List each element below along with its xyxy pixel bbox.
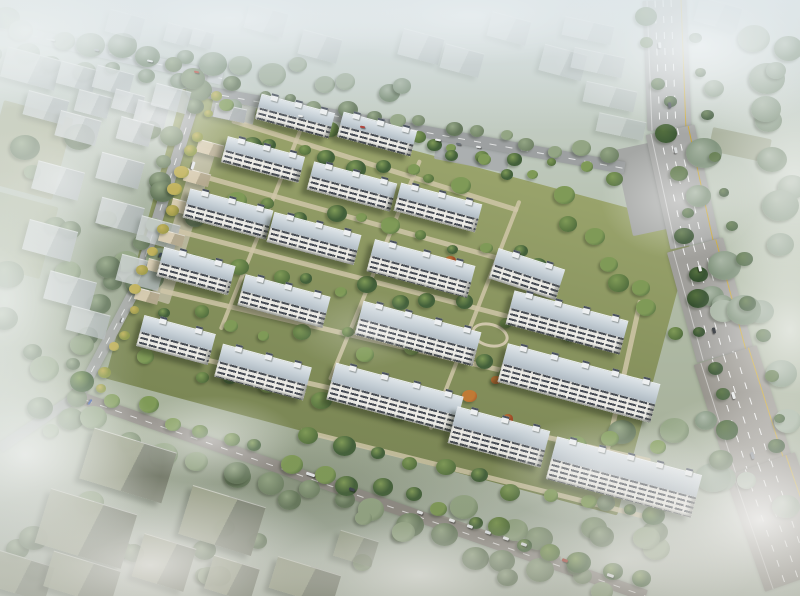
tree — [739, 296, 756, 311]
tree — [500, 484, 520, 501]
tree — [342, 327, 354, 337]
tree — [357, 276, 377, 293]
tree — [204, 110, 213, 118]
tree — [229, 56, 252, 76]
tree — [446, 122, 463, 136]
tree — [199, 52, 227, 76]
tree — [547, 158, 556, 166]
tree — [0, 47, 2, 60]
tree — [471, 468, 488, 482]
tree — [548, 146, 562, 158]
tree — [139, 396, 159, 413]
tree — [165, 418, 181, 432]
tree — [719, 188, 730, 197]
road — [725, 452, 800, 592]
lane-marking — [671, 0, 677, 130]
tree — [488, 517, 510, 536]
tree — [431, 523, 458, 546]
tree — [774, 36, 800, 60]
tree — [138, 69, 155, 83]
context-building — [582, 81, 637, 112]
tree — [768, 439, 784, 453]
tree — [281, 455, 303, 474]
tree — [192, 132, 203, 141]
tree — [451, 177, 471, 194]
tree — [704, 80, 724, 97]
tree — [651, 78, 665, 90]
tree — [223, 76, 241, 92]
lane-marking — [663, 0, 669, 130]
tree — [137, 349, 155, 364]
tree — [96, 384, 106, 393]
car — [659, 42, 662, 48]
tree — [336, 73, 356, 90]
tree — [436, 459, 455, 475]
context-building — [204, 555, 260, 596]
tree — [130, 306, 140, 314]
context-building — [486, 11, 531, 46]
tree — [478, 154, 491, 165]
tree — [590, 526, 614, 547]
tree — [682, 208, 694, 218]
context-building — [189, 27, 215, 49]
tree — [544, 489, 559, 502]
tree — [767, 233, 794, 256]
tree — [224, 433, 240, 447]
lane-marking — [680, 0, 686, 129]
tree — [716, 388, 730, 400]
context-building — [397, 28, 445, 65]
tree — [650, 440, 666, 454]
tree — [104, 394, 120, 408]
tree — [258, 331, 269, 341]
tree — [315, 466, 336, 484]
tree — [526, 558, 554, 582]
tree — [174, 166, 188, 178]
tree — [300, 273, 312, 283]
tree — [10, 135, 40, 161]
tree — [507, 153, 521, 165]
tree — [762, 190, 799, 222]
context-building — [596, 112, 647, 141]
tree — [480, 243, 492, 254]
context-building — [0, 46, 62, 90]
tree — [54, 32, 74, 49]
tree — [450, 495, 478, 519]
tree — [219, 99, 234, 111]
tree — [600, 257, 618, 272]
tree — [165, 57, 182, 71]
tree — [402, 457, 417, 470]
tree — [527, 170, 538, 179]
tree — [109, 342, 119, 351]
context-building — [694, 0, 743, 32]
tree — [608, 274, 628, 291]
tree — [462, 390, 476, 402]
tree — [701, 110, 713, 120]
tree — [501, 130, 513, 140]
tree — [423, 174, 434, 183]
context-building — [243, 3, 288, 38]
aerial-site-plan-rendering — [0, 0, 800, 596]
tree — [708, 362, 723, 375]
tree — [632, 570, 652, 587]
tree — [695, 411, 718, 430]
tree — [196, 372, 209, 383]
tree — [381, 217, 401, 234]
tree — [624, 504, 637, 515]
tree — [135, 46, 160, 67]
tree — [298, 427, 318, 444]
tree — [356, 347, 373, 362]
tree — [501, 169, 514, 180]
tree — [293, 324, 311, 339]
tree — [726, 221, 738, 231]
tree — [591, 582, 613, 596]
tree — [289, 57, 307, 72]
tree — [258, 472, 285, 495]
tree — [136, 265, 147, 275]
tree — [278, 490, 301, 509]
context-building — [562, 16, 615, 45]
tree — [756, 329, 771, 342]
tree — [327, 205, 347, 222]
tree — [30, 356, 59, 381]
tree — [738, 25, 770, 52]
tree — [299, 145, 311, 155]
tree — [371, 447, 384, 458]
tree — [9, 20, 33, 40]
tree — [70, 335, 93, 355]
tree — [247, 439, 261, 451]
tree — [430, 502, 447, 516]
tree — [606, 172, 623, 186]
tree — [166, 205, 179, 216]
tree — [554, 186, 575, 203]
tree — [695, 68, 706, 77]
tree — [774, 414, 785, 423]
tree — [393, 78, 411, 93]
context-building — [439, 43, 484, 78]
tree — [373, 478, 394, 496]
tree — [259, 63, 286, 86]
tree — [406, 487, 422, 500]
tree — [757, 147, 787, 172]
tree — [470, 125, 484, 137]
tree — [689, 33, 701, 44]
tree — [632, 280, 650, 295]
tree — [76, 33, 105, 58]
car — [668, 102, 671, 108]
tree — [765, 370, 779, 382]
tree — [80, 406, 107, 429]
tree — [668, 327, 683, 340]
tree — [540, 544, 560, 561]
tree — [686, 185, 712, 207]
tree — [736, 252, 753, 266]
tree — [660, 418, 689, 442]
tree — [581, 161, 593, 171]
tree — [224, 320, 238, 332]
tree — [408, 164, 420, 174]
tree — [640, 37, 653, 48]
tree — [737, 472, 757, 489]
tree — [716, 420, 738, 439]
tree — [655, 124, 677, 142]
tree — [585, 228, 604, 245]
tree — [518, 138, 533, 151]
tree — [633, 527, 660, 550]
tree — [195, 305, 210, 318]
tree — [772, 495, 800, 519]
tree — [751, 96, 781, 121]
lane-marking — [770, 460, 800, 576]
tree — [462, 547, 489, 570]
tree — [315, 76, 335, 93]
tree — [392, 522, 415, 541]
tree — [156, 155, 171, 168]
tree — [497, 569, 518, 586]
tree — [376, 160, 391, 173]
tree — [559, 216, 577, 232]
tree — [43, 424, 59, 438]
tree — [572, 140, 591, 156]
tree — [333, 436, 356, 456]
tree — [709, 450, 733, 471]
tree — [129, 284, 141, 294]
context-building — [269, 556, 342, 596]
tree — [597, 495, 615, 510]
tree — [415, 230, 427, 240]
tree — [709, 152, 721, 162]
tree — [601, 431, 619, 446]
context-building — [105, 9, 146, 41]
tree — [355, 511, 372, 526]
tree — [167, 183, 181, 195]
